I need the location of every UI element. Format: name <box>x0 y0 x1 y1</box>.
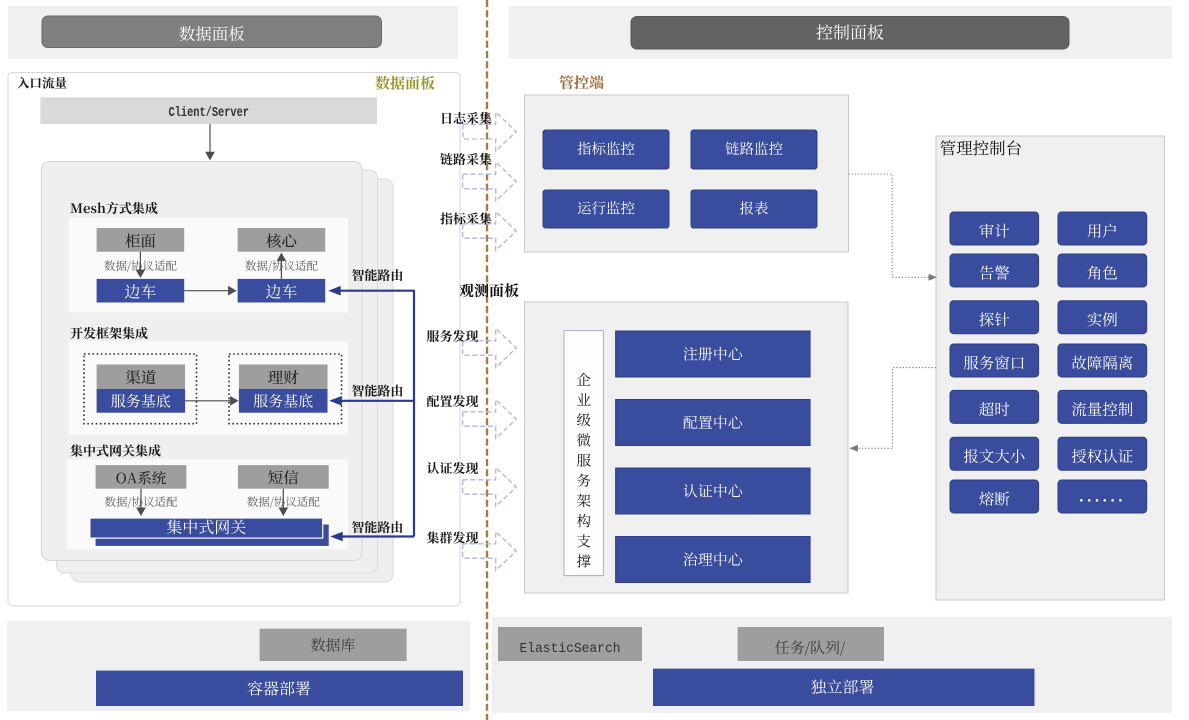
svg-text:ElasticSearch: ElasticSearch <box>520 642 621 657</box>
svg-text:Client/Server: Client/Server <box>169 105 250 121</box>
